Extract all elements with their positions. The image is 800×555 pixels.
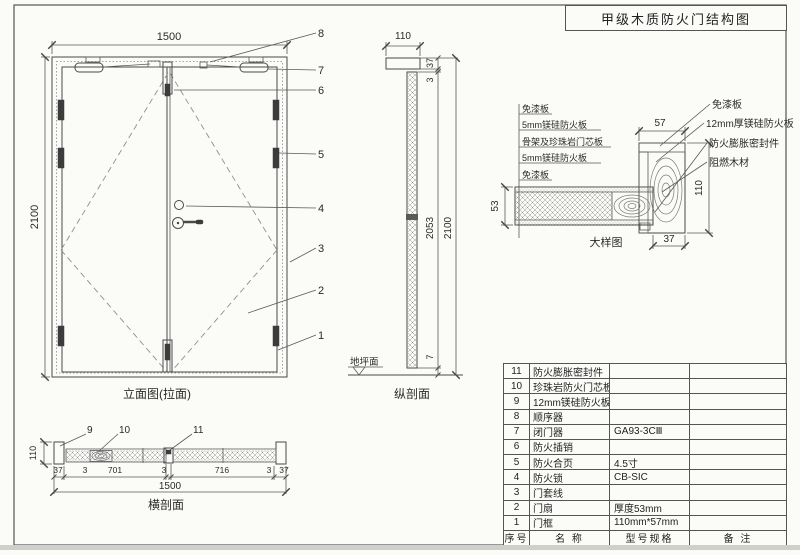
dim-37-detail: 37: [663, 234, 675, 245]
hinge: [58, 100, 64, 120]
dim-3-a: 3: [83, 465, 88, 475]
elevation-view: 1500 2100 8 7 6 5 4 3 2 1 立面图(拉面): [29, 28, 324, 401]
layer-label-2: 5mm镁硅防火板: [522, 119, 587, 130]
table-cell-remark: [690, 410, 787, 425]
table-cell-spec: CB-SIC: [610, 470, 690, 485]
table-cell-name: 闭门器: [530, 425, 610, 440]
horizontal-section-view: 9 10 11 110: [28, 425, 289, 512]
part-label-4: 阻燃木材: [709, 156, 749, 169]
dim-37-left: 37: [53, 465, 63, 475]
table-cell-name: 门框: [530, 516, 610, 531]
table-cell-no: 6: [504, 440, 530, 455]
callout-6: 6: [318, 85, 324, 97]
table-cell-no: 4: [504, 470, 530, 485]
dim-37: 37: [425, 58, 435, 68]
table-cell-no: 11: [504, 364, 530, 379]
table-cell-no: 2: [504, 501, 530, 516]
table-cell-no: 5: [504, 455, 530, 470]
table-cell-spec: [610, 440, 690, 455]
table-cell-remark: [690, 425, 787, 440]
table-cell-spec: [610, 410, 690, 425]
table-cell-name: 防火合页: [530, 455, 610, 470]
table-cell-remark: [690, 501, 787, 516]
lock-cylinder: [175, 201, 184, 210]
table-cell-remark: [690, 485, 787, 500]
table-cell-no: 7: [504, 425, 530, 440]
dim-110-head: 110: [395, 31, 411, 42]
part-label-3: 防火膨胀密封件: [709, 137, 779, 150]
parts-table: 11 防火膨胀密封件 10 珍珠岩防火门芯板 9 12mm镁硅防火板 8 顺序器…: [503, 363, 787, 546]
table-header-remark: 备 注: [690, 531, 787, 546]
swing-dash: [170, 73, 277, 250]
layer-label-5: 免漆板: [522, 169, 549, 180]
blueprint-page: { "title": "甲级木质防火门结构图", "elevation": { …: [0, 0, 800, 550]
table-cell-name: 顺序器: [530, 410, 610, 425]
handle-tip: [196, 220, 203, 224]
table-cell-remark: [690, 516, 787, 531]
door-frame-inner: [62, 67, 277, 372]
callout-1: 1: [318, 330, 324, 342]
dim-2100-section: 2100: [443, 216, 454, 239]
door-frame-outer: [52, 57, 287, 377]
page-edge-shadow: [0, 545, 800, 550]
table-cell-name: 12mm镁硅防火板: [530, 394, 610, 409]
callout-9: 9: [87, 425, 93, 436]
part-label-1: 免漆板: [712, 98, 742, 111]
callout-10: 10: [119, 425, 131, 436]
jamb-section-left: [54, 442, 64, 464]
vertical-section-view: 110 37 3 2053 7 2100 地坪面 纵剖面: [348, 31, 463, 401]
detail-label: 大样图: [590, 235, 623, 249]
table-cell-no: 10: [504, 379, 530, 394]
table-cell-remark: [690, 455, 787, 470]
dim-110-hsection: 110: [28, 446, 38, 460]
dim-57: 57: [654, 118, 666, 129]
table-cell-spec: [610, 379, 690, 394]
table-cell-remark: [690, 364, 787, 379]
table-cell-name: 防火膨胀密封件: [530, 364, 610, 379]
table-cell-spec: 110mm*57mm: [610, 516, 690, 531]
callout-3: 3: [318, 243, 324, 255]
frame-head-section: [386, 58, 420, 69]
callout-7: 7: [318, 65, 324, 77]
vsection-label: 纵剖面: [394, 387, 430, 401]
table-cell-spec: [610, 364, 690, 379]
dim-716: 716: [215, 465, 229, 475]
flush-bolt-top: [165, 84, 170, 96]
dim-3-c: 3: [267, 465, 272, 475]
hsection-label: 横剖面: [148, 498, 184, 512]
elevation-label: 立面图(拉面): [123, 386, 191, 401]
flush-bolt-bottom: [165, 344, 170, 360]
table-cell-no: 9: [504, 394, 530, 409]
table-cell-spec: [610, 485, 690, 500]
table-cell-no: 3: [504, 485, 530, 500]
layer-label-1: 免漆板: [522, 103, 549, 114]
table-header-name: 名 称: [530, 531, 610, 546]
door-frame-gasket-line: [57, 62, 283, 374]
ground-label: 地坪面: [350, 356, 379, 368]
dim-110-detail: 110: [694, 180, 705, 196]
table-cell-no: 1: [504, 516, 530, 531]
handle-axis: [177, 222, 179, 224]
callout-2: 2: [318, 285, 324, 297]
drawing-title: 甲级木质防火门结构图: [601, 9, 751, 28]
jamb-section-right: [276, 442, 286, 464]
dim-701: 701: [108, 465, 122, 475]
layer-label-3: 骨架及珍珠岩门芯板: [522, 136, 603, 147]
hinge: [58, 326, 64, 346]
dim-3-b: 3: [162, 465, 167, 475]
part-label-2: 12mm厚镁硅防火板: [706, 117, 794, 130]
table-cell-remark: [690, 394, 787, 409]
table-cell-name: 防火锁: [530, 470, 610, 485]
dim-1500: 1500: [157, 31, 181, 43]
table-header-no: 序号: [504, 531, 530, 546]
drawing-title-block: 甲级木质防火门结构图: [565, 5, 787, 31]
dim-2100: 2100: [29, 205, 41, 229]
level-marker-icon: [353, 367, 365, 375]
table-cell-name: 珍珠岩防火门芯板: [530, 379, 610, 394]
hinge: [273, 148, 279, 168]
table-cell-remark: [690, 379, 787, 394]
hinge: [273, 326, 279, 346]
callout-11: 11: [193, 425, 204, 436]
dim-1500-hsection: 1500: [159, 481, 182, 492]
table-cell-name: 门扇: [530, 501, 610, 516]
dim-3: 3: [425, 77, 435, 82]
table-cell-no: 8: [504, 410, 530, 425]
table-cell-spec: GA93-3CⅢ: [610, 425, 690, 440]
table-cell-spec: [610, 394, 690, 409]
swing-dash: [171, 250, 277, 372]
table-cell-name: 防火插销: [530, 440, 610, 455]
swing-dash: [61, 250, 167, 372]
table-cell-spec: 4.5寸: [610, 455, 690, 470]
dim-53: 53: [490, 200, 501, 212]
dim-2053: 2053: [425, 216, 436, 239]
swing-dash: [61, 73, 168, 250]
table-cell-remark: [690, 440, 787, 455]
callout-8: 8: [318, 28, 324, 40]
hinge: [273, 100, 279, 120]
hinge: [58, 148, 64, 168]
dim-37-right: 37: [279, 465, 289, 475]
table-header-spec: 型号规格: [610, 531, 690, 546]
table-cell-spec: 厚度53mm: [610, 501, 690, 516]
dim-7: 7: [425, 354, 435, 359]
table-cell-remark: [690, 470, 787, 485]
layer-label-4: 5mm镁硅防火板: [522, 152, 587, 163]
detail-view: 免漆板 5mm镁硅防火板 骨架及珍珠岩门芯板 5mm镁硅防火板 免漆板: [490, 98, 794, 249]
leaf-hardware-mark: [406, 214, 418, 220]
table-cell-name: 门套线: [530, 485, 610, 500]
callout-4: 4: [318, 203, 324, 215]
callout-5: 5: [318, 149, 324, 161]
